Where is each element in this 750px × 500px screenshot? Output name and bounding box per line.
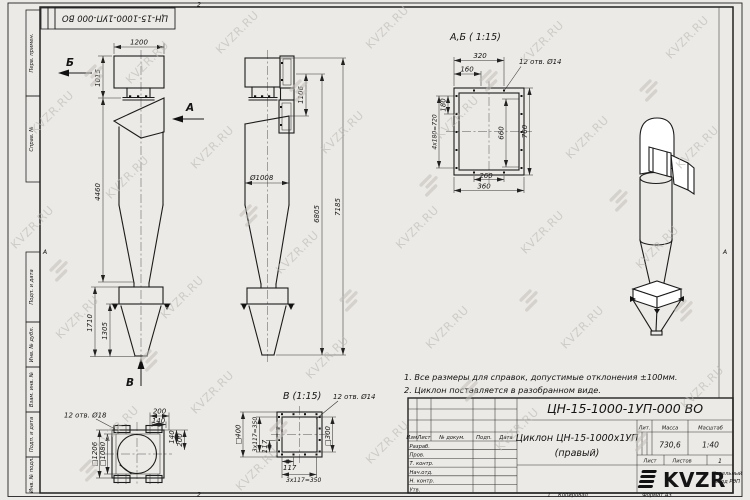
v-right-dim-sq300: □300 — [324, 425, 332, 446]
zone-mark-bottom: 2 — [197, 491, 201, 498]
tb-sheets-value: 1 — [718, 458, 722, 465]
note-1: 1. Все размеры для справок, допустимые о… — [404, 372, 677, 382]
ab-dim-360: 360 — [477, 183, 491, 191]
tb-company-line2: завод РЭП — [712, 479, 740, 485]
strip-label-vzam-inv: Взам. инв. № — [29, 372, 35, 407]
v-left-dim-200r: 200 — [176, 433, 184, 447]
watermark-text: KVZR.RU — [363, 3, 412, 52]
v-right-dim-117b: 117 — [283, 464, 297, 472]
v-left-dim-140r: 140 — [168, 430, 176, 444]
tb-scale-label: Масштаб — [698, 426, 723, 432]
front-arrow-a: А — [185, 102, 194, 114]
front-arrow-b: Б — [66, 57, 74, 69]
watermark-text: KVZR.RU — [213, 8, 262, 57]
tb-scale-value: 1:40 — [702, 441, 719, 450]
note-2: 2. Циклон поставляется в разобранном вид… — [404, 385, 601, 395]
tb-row-nachotd: Нач.отд. — [410, 470, 433, 476]
zone-mark-left: А — [42, 249, 47, 256]
zone-mark-right: А — [722, 249, 727, 256]
tb-sheets-label: Листов — [671, 459, 691, 465]
tb-name-line2: (правый) — [555, 448, 600, 459]
side-dim-7185: 7185 — [334, 198, 342, 216]
tb-sheet-label: Лист — [642, 459, 657, 465]
drawing-sheet: Перв. примен. Справ. № Подп. и дата Инв.… — [0, 0, 750, 500]
watermark-logo-icon — [82, 62, 108, 88]
tb-col-podp: Подп. — [476, 435, 492, 441]
view-v-title: В (1:15) — [283, 391, 321, 402]
watermark-text: KVZR.RU — [518, 208, 567, 257]
kvzr-logo-icon — [638, 470, 657, 488]
front-dim-4460: 4460 — [94, 183, 102, 201]
front-arrow-v: В — [126, 377, 134, 389]
tb-row-utv: Утв. — [410, 487, 421, 493]
watermark-logo-icon — [237, 202, 263, 228]
watermark-text: KVZR.RU — [273, 228, 322, 277]
stamp-designation: ЦН-15-1000-1УП-000 ВО — [62, 13, 168, 23]
ab-dim-180: 180 — [440, 98, 448, 112]
watermark-text: KVZR.RU — [8, 203, 57, 252]
watermark-text: KVZR.RU — [188, 368, 237, 417]
tb-mass-value: 730,6 — [659, 441, 681, 450]
v-left-dim-200t: 200 — [153, 408, 167, 416]
v-right-dim-pitch-l: 3х117=350 — [252, 417, 259, 452]
view-front: 1200 1015 4460 1710 1305 Б А В — [58, 39, 204, 390]
strip-label-podp-data-2: Подп. и дата — [29, 417, 35, 452]
tb-row-tkontr: Т. контр. — [410, 461, 434, 467]
watermark-logo-icon — [417, 172, 443, 198]
watermark-text: KVZR.RU — [158, 273, 207, 322]
v-right-dim-pitch-b: 3х117=350 — [286, 477, 321, 484]
v-left-holes-label: 12 отв. Ø18 — [64, 412, 107, 420]
tb-row-razrab: Разраб. — [410, 444, 430, 450]
v-right-dim-sq400: □400 — [235, 424, 243, 445]
front-dim-1200: 1200 — [130, 39, 148, 47]
tb-col-doc: № докум. — [438, 435, 465, 441]
watermark-logo-icon — [517, 287, 543, 313]
ab-dim-160: 160 — [460, 66, 474, 74]
tb-mass-label: Масса — [662, 426, 679, 432]
watermark-logo-icon — [607, 187, 633, 213]
watermark-text: KVZR.RU — [93, 403, 142, 452]
watermark-text: KVZR.RU — [393, 203, 442, 252]
tb-company-line1: Котельный — [712, 471, 743, 477]
watermark-text: KVZR.RU — [563, 113, 612, 162]
tb-row-prov: Пров. — [410, 453, 425, 459]
notes: 1. Все размеры для справок, допустимые о… — [404, 372, 677, 395]
watermark-text: KVZR.RU — [363, 418, 412, 467]
watermark-text: KVZR.RU — [423, 303, 472, 352]
title-block: ЦН-15-1000-1УП-000 ВО Циклон ЦН-15-1000х… — [406, 398, 743, 493]
watermark-text: KVZR.RU — [673, 123, 722, 172]
copied-label: Копировал — [558, 493, 588, 499]
watermark-text: KVZR.RU — [558, 303, 607, 352]
v-left-dim-140t: 140 — [152, 417, 166, 425]
watermark-text: KVZR.RU — [188, 123, 237, 172]
left-strip: Перв. примен. Справ. № Подп. и дата Инв.… — [26, 10, 40, 493]
strip-label-inv-dubl: Инв. № дубл. — [29, 327, 35, 363]
ab-dim-260: 260 — [479, 172, 493, 180]
zone-mark-top: 2 — [197, 1, 201, 8]
watermark-text: KVZR.RU — [103, 153, 152, 202]
ab-dim-660: 660 — [498, 126, 506, 140]
ab-dim-320: 320 — [473, 52, 487, 60]
watermark-text: KVZR.RU — [53, 293, 102, 342]
drawing-canvas: Перв. примен. Справ. № Подп. и дата Инв.… — [0, 0, 750, 500]
ab-dim-760: 760 — [521, 124, 529, 138]
watermark-text: KVZR.RU — [28, 88, 77, 137]
tb-name-line1: Циклон ЦН-15-1000х1УП — [516, 433, 639, 444]
watermark-logo-icon — [267, 417, 293, 443]
tb-row-nkontr: Н. контр. — [410, 479, 435, 485]
copy-number: 1 — [547, 493, 550, 499]
top-stamp: ЦН-15-1000-1УП-000 ВО — [41, 8, 175, 29]
watermark-text: KVZR.RU — [318, 108, 367, 157]
strip-label-perv-primen: Перв. примен. — [29, 34, 35, 73]
watermark-text: KVZR.RU — [303, 333, 352, 382]
strip-label-podp-data-1: Подп. и дата — [29, 269, 35, 304]
front-dim-1305: 1305 — [101, 322, 109, 340]
strip-label-inv-podl: Инв. № подл. — [29, 457, 35, 493]
watermark-logo-icon — [47, 257, 73, 283]
format-label: Формат А3 — [642, 493, 672, 499]
v-right-holes-label: 12 отв. Ø14 — [333, 393, 376, 401]
watermark-logo-icon — [637, 77, 663, 103]
side-dim-diameter: Ø1008 — [249, 174, 274, 182]
side-dim-6805: 6805 — [313, 205, 321, 223]
view-side: Ø1008 1106 6805 7185 — [241, 50, 346, 362]
watermark-text: KVZR.RU — [663, 13, 712, 62]
tb-col-list: Лист — [416, 435, 431, 441]
watermark-logo-icon — [337, 287, 363, 313]
section-ab-title: А,Б ( 1:15) — [449, 32, 501, 43]
watermark-logo-icon — [287, 77, 313, 103]
